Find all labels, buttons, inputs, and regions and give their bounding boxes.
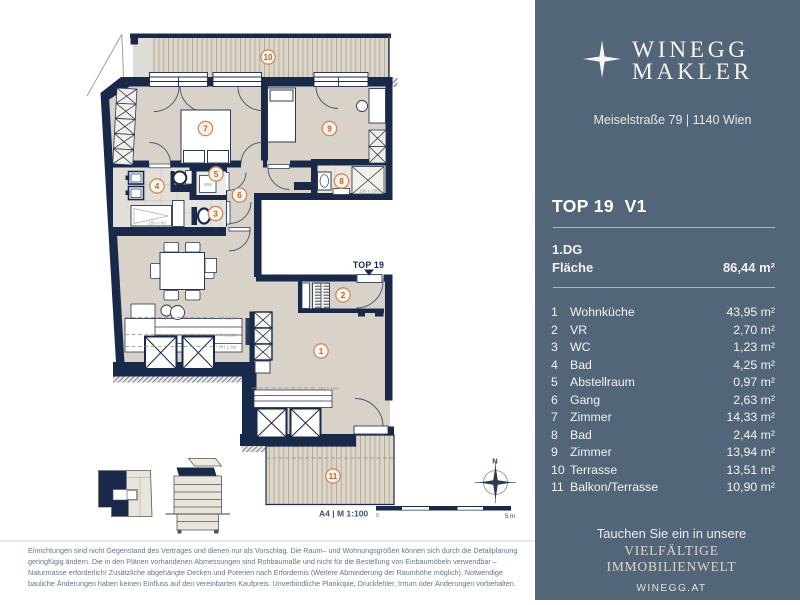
svg-text:100 x 100: 100 x 100: [359, 189, 379, 194]
svg-text:2: 2: [341, 291, 346, 300]
svg-text:7: 7: [203, 125, 208, 134]
svg-text:0: 0: [376, 513, 379, 519]
svg-text:N: N: [492, 457, 497, 466]
svg-text:9: 9: [327, 125, 332, 134]
svg-text:5 m: 5 m: [505, 514, 515, 520]
svg-text:5: 5: [214, 170, 219, 179]
svg-text:4: 4: [155, 182, 160, 191]
svg-text:1: 1: [319, 347, 324, 356]
svg-text:8: 8: [339, 177, 344, 186]
svg-text:10: 10: [263, 53, 273, 62]
svg-text:3: 3: [213, 210, 218, 219]
svg-text:RH 2.10m: RH 2.10m: [319, 386, 339, 391]
svg-text:A4 | M 1:100: A4 | M 1:100: [319, 509, 368, 519]
svg-text:bauliche Änderungen haben kein: bauliche Änderungen haben keinen Einflus…: [28, 579, 516, 588]
svg-text:Einrichtungen sind nicht Gegen: Einrichtungen sind nicht Gegenstand des …: [28, 546, 517, 555]
svg-text:RH 2.10m: RH 2.10m: [218, 315, 238, 320]
svg-text:11: 11: [329, 472, 338, 481]
svg-text:RH 1.5m: RH 1.5m: [219, 344, 237, 349]
svg-text:WM: WM: [204, 182, 212, 187]
svg-text:Naturmasse erforderlich! Zusät: Naturmasse erforderlich! Zusätzliche abg…: [28, 568, 503, 577]
svg-text:geringfügig ändern. Die in den: geringfügig ändern. Die in den Plänen vo…: [28, 557, 497, 566]
svg-text:RH 1.8m: RH 1.8m: [219, 332, 237, 337]
svg-text:TOP 19: TOP 19: [353, 260, 384, 270]
svg-text:150 x 80: 150 x 80: [148, 221, 166, 226]
svg-text:6: 6: [237, 191, 242, 200]
